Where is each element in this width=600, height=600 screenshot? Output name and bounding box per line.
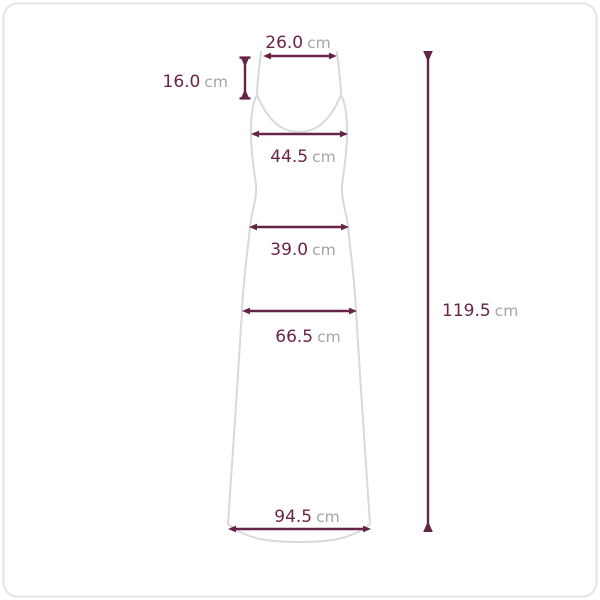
hip-width-value: 66.5 [275,327,313,347]
measurement-diagram: 26.0cm 16.0cm 44.5cm 39.0cm 66.5cm 94.5c… [0,0,600,600]
dimension-waist-width: 39.0cm [249,224,349,260]
arrow-left-icon [251,131,259,138]
waist-width-label: 39.0cm [270,240,335,260]
hem-width-label: 94.5cm [274,507,339,527]
top-width-label: 26.0cm [265,33,330,53]
arrow-left-icon [263,53,271,60]
dimension-top-width: 26.0cm [263,33,337,59]
arrow-down-icon [423,521,433,532]
hip-width-unit: cm [317,328,341,346]
dress-outline [228,52,370,542]
dimension-strap-length: 16.0cm [163,58,251,99]
bust-width-unit: cm [312,148,336,166]
bust-width-label: 44.5cm [270,147,335,167]
right-strap-line [337,52,341,95]
top-width-value: 26.0 [265,33,303,53]
arrow-right-icon [329,53,337,60]
strap-length-unit: cm [204,73,228,91]
strap-length-value: 16.0 [163,72,201,92]
total-length-unit: cm [495,302,519,320]
waist-width-value: 39.0 [270,240,308,260]
strap-length-label: 16.0cm [163,72,228,92]
total-length-value: 119.5 [442,301,491,321]
total-length-label: 119.5cm [442,301,518,321]
hip-width-label: 66.5cm [275,327,340,347]
dimension-hem-width: 94.5cm [228,507,371,532]
arrow-left-icon [242,308,250,315]
hem-width-value: 94.5 [274,507,312,527]
arrow-up-icon [423,51,433,62]
dimension-hip-width: 66.5cm [242,308,357,347]
waist-width-unit: cm [312,241,336,259]
left-strap-line [257,52,261,95]
arrow-up-icon [241,58,249,67]
diagram-canvas: 26.0cm 16.0cm 44.5cm 39.0cm 66.5cm 94.5c… [0,0,600,600]
dimension-bust-width: 44.5cm [251,131,348,167]
hem-width-unit: cm [316,508,340,526]
top-width-unit: cm [307,34,331,52]
arrow-down-icon [241,89,249,98]
dimension-total-length: 119.5cm [423,51,518,532]
neckline-v [257,95,341,132]
bust-width-value: 44.5 [270,147,308,167]
